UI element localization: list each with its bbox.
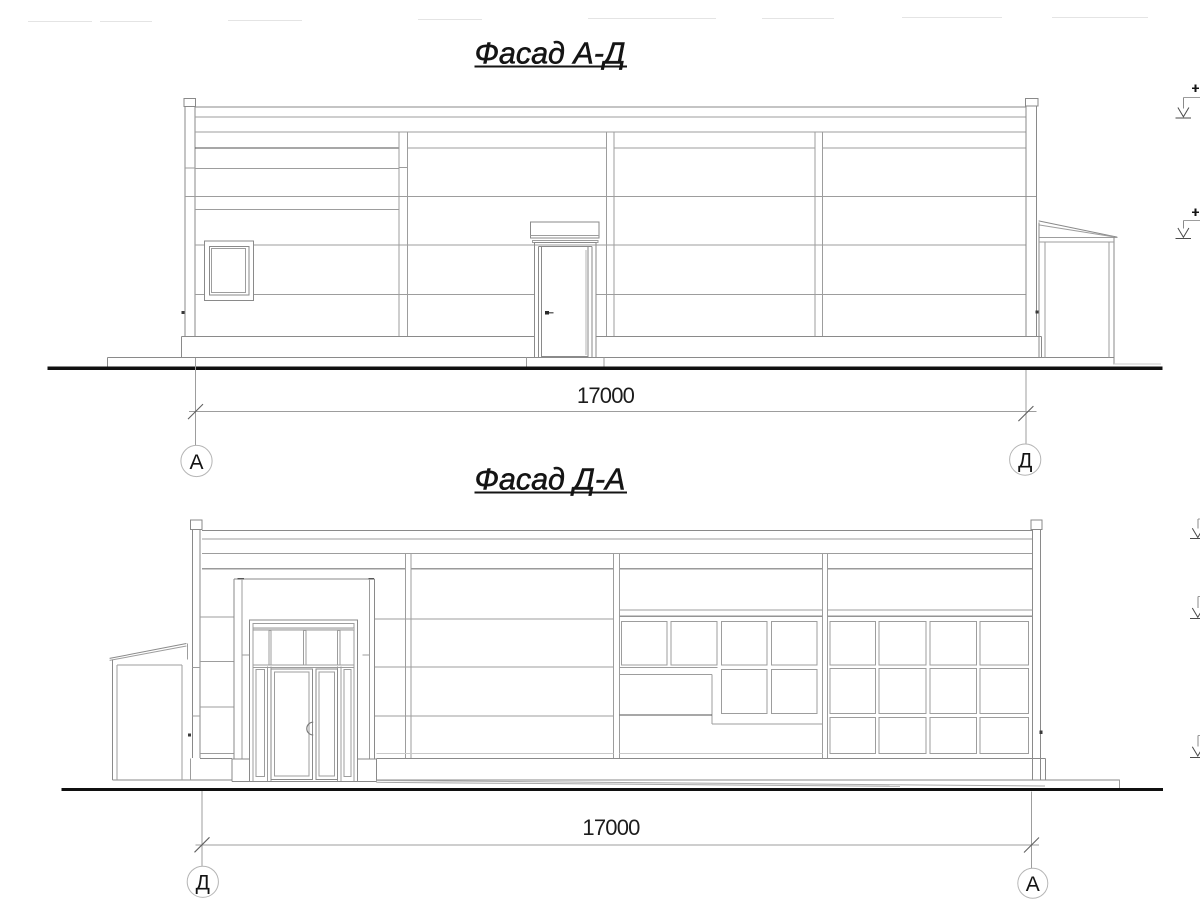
svg-text:А: А: [1026, 873, 1040, 896]
svg-text:Д: Д: [196, 872, 210, 895]
svg-text:Д: Д: [1018, 450, 1032, 473]
svg-text:17000: 17000: [577, 383, 635, 408]
svg-text:А: А: [189, 451, 203, 474]
svg-text:17000: 17000: [582, 815, 640, 840]
